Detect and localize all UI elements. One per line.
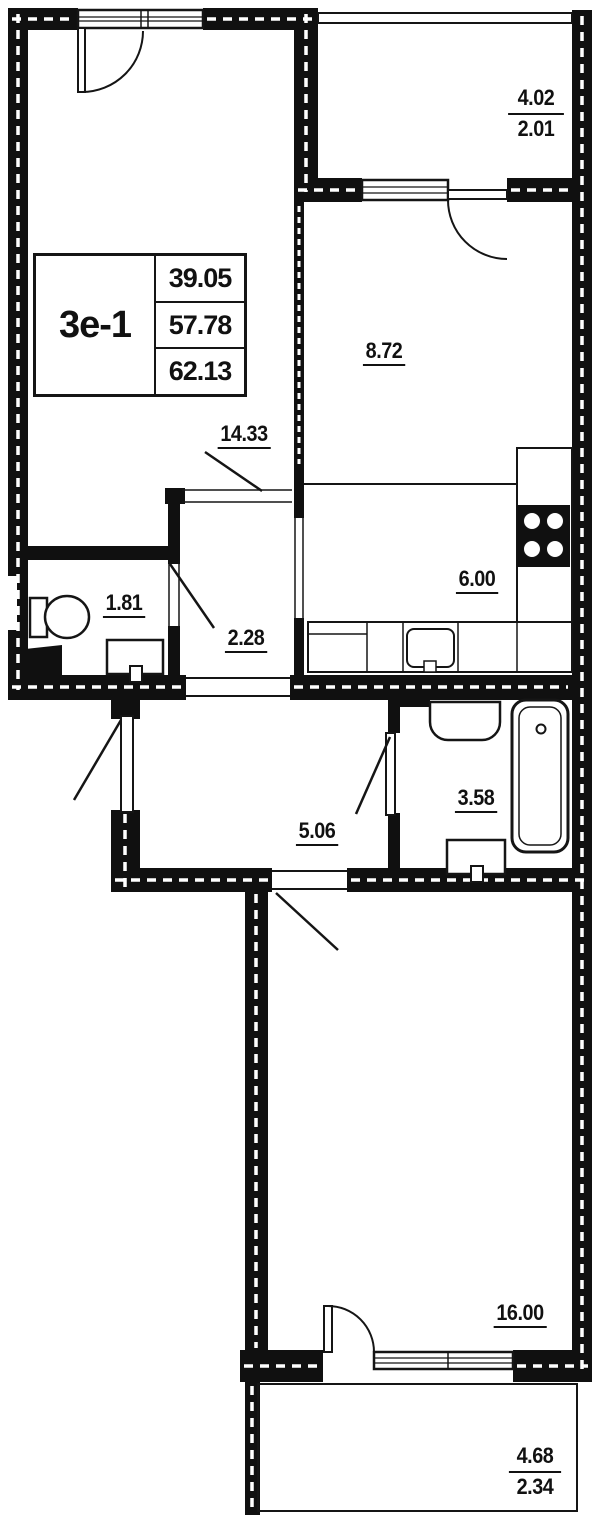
door-swing-entrance: [74, 720, 121, 800]
balcony-top-rail: [318, 13, 572, 23]
wall-bathroom-left-bottom: [388, 813, 400, 870]
room-area-label-room: 8.72: [363, 340, 405, 366]
door-swing-living-hall: [205, 452, 262, 491]
bathroom-fixtures: [430, 700, 568, 882]
room-area-label-hall: 2.28: [225, 627, 267, 653]
unit-living-area: 39.05: [156, 256, 244, 301]
door-arc-room-balcony: [448, 200, 507, 259]
room-area-label-bedroom: 16.00: [494, 1302, 547, 1328]
door-swing-wc: [170, 564, 214, 628]
room-area-label-wc: 1.81: [103, 592, 145, 618]
room-area-label-living: 14.33: [218, 423, 271, 449]
balcony-bottom-area-reduced: 2.34: [509, 1473, 561, 1500]
balcony-top-area-full: 4.02: [508, 86, 564, 115]
stove-burner: [547, 513, 564, 530]
wall-partition-chunk1: [294, 470, 304, 518]
washbasin: [430, 702, 500, 740]
door-arc-living-balcony: [82, 31, 143, 92]
bathtub-outer: [512, 700, 568, 852]
door-arc-bedroom-balcony: [328, 1306, 374, 1352]
stove-burner: [547, 541, 564, 558]
door-swing-bedroom: [276, 893, 338, 950]
kitchen-sink-stub: [424, 661, 436, 672]
unit-info-card: 3е-1 39.05 57.78 62.13: [33, 253, 247, 397]
door-leaf-entrance: [121, 716, 133, 812]
kitchen-fixtures: [304, 448, 572, 672]
door-swing-bathroom: [356, 737, 390, 814]
wc-shaft-wedge: [16, 645, 62, 676]
stove-burner: [524, 513, 541, 530]
room-area-label-bathroom: 3.58: [455, 787, 497, 813]
unit-apartment-area: 57.78: [156, 301, 244, 348]
room-area-label-corridor: 5.06: [296, 820, 338, 846]
wall-partition-chunk2: [294, 618, 304, 676]
toilet-bowl: [45, 596, 89, 638]
balcony-top-area-reduced: 2.01: [508, 115, 564, 142]
stove-burner: [524, 541, 541, 558]
balcony-bottom-area-label: 4.68 2.34: [509, 1444, 561, 1499]
window-bedroom: [374, 1352, 513, 1369]
unit-total-area: 62.13: [156, 347, 244, 394]
wc-sink-stub: [130, 666, 142, 682]
door-leaf-room-balcony: [448, 190, 507, 199]
unit-id: 3е-1: [36, 256, 154, 394]
stove: [517, 505, 570, 567]
unit-areas: 39.05 57.78 62.13: [154, 256, 244, 394]
floor-plan-drawing: [0, 0, 600, 1526]
floor-plan: 14.33 8.72 6.00 1.81 2.28 5.06 3.58 16.0…: [0, 0, 600, 1526]
wall-bathroom-pier: [398, 697, 430, 707]
door-leaf-bedroom-balcony: [324, 1306, 332, 1352]
balcony-bottom-area-full: 4.68: [509, 1444, 561, 1473]
door-leaf-living-balcony: [78, 28, 85, 92]
windows: [78, 10, 577, 1511]
balcony-top-area-label: 4.02 2.01: [508, 86, 564, 141]
wall-notch: [8, 576, 17, 630]
bathroom-sink-stub: [471, 866, 483, 882]
window-room-872: [362, 180, 448, 200]
room-area-label-kitchen: 6.00: [456, 568, 498, 594]
wall-wc-top: [28, 546, 170, 560]
